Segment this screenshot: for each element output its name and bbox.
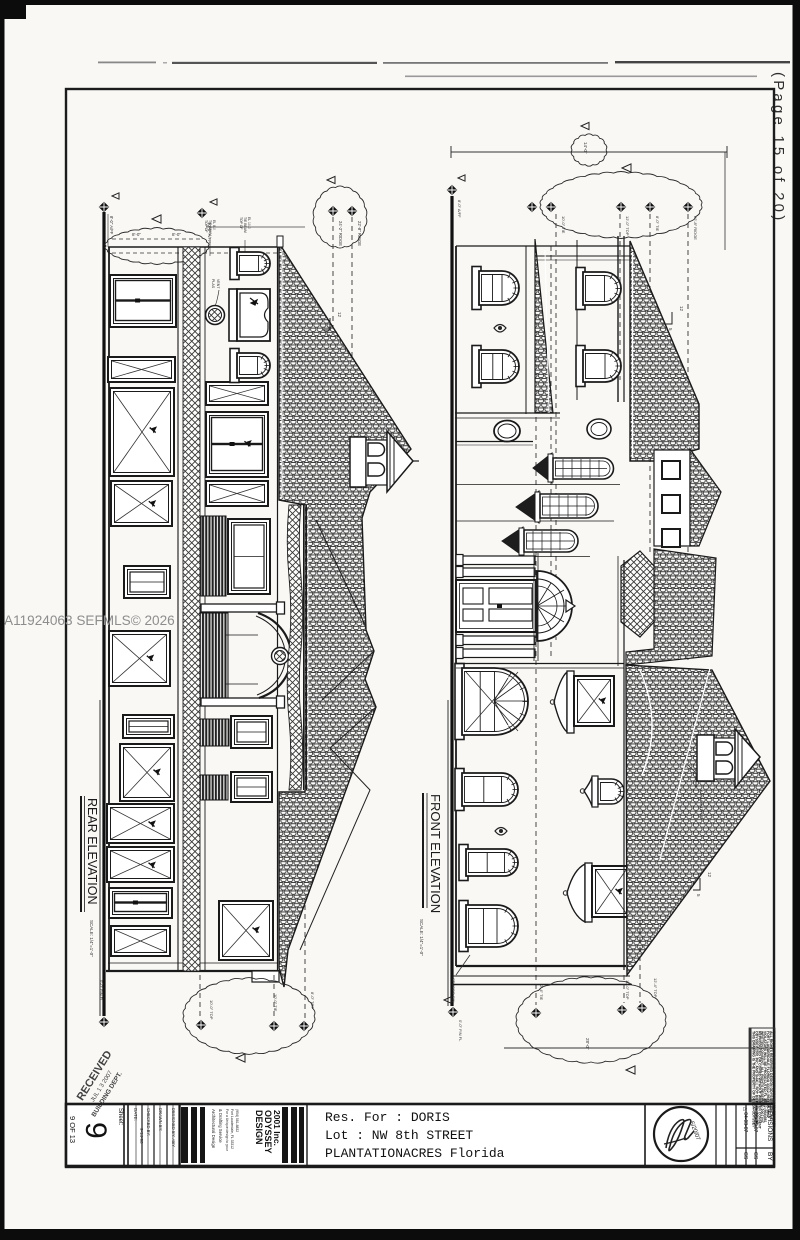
svg-text:0'-0" FIN FL: 0'-0" FIN FL	[99, 980, 104, 1002]
svg-text:CHECKED BY:: CHECKED BY:	[146, 1108, 151, 1136]
svg-text:2001 Inc.: 2001 Inc.	[272, 1110, 282, 1146]
svg-text:STUCCO FIN: STUCCO FIN	[451, 978, 456, 1003]
svg-text:EL 8-0: EL 8-0	[212, 220, 216, 230]
svg-text:12'-0" TOP: 12'-0" TOP	[625, 216, 630, 236]
svg-text:SCALE: 1/4"=1'-0": SCALE: 1/4"=1'-0"	[419, 919, 424, 956]
svg-text:PLANTATIONACRES Florida: PLANTATIONACRES Florida	[325, 1146, 505, 1161]
svg-text:28'-0": 28'-0"	[585, 1038, 590, 1050]
svg-text:TIE BEAM: TIE BEAM	[243, 217, 247, 233]
svg-text:PLAS: PLAS	[211, 279, 215, 289]
svg-text:TOP OF: TOP OF	[204, 220, 208, 233]
svg-text:DESIGN: DESIGN	[254, 1110, 264, 1145]
svg-text:9-14-96: 9-14-96	[139, 1128, 144, 1144]
svg-text:8'-0" A/FF: 8'-0" A/FF	[109, 216, 114, 235]
svg-text:ODYSSEY: ODYSSEY	[263, 1110, 273, 1154]
svg-text:22'-8" RIDGE: 22'-8" RIDGE	[693, 216, 698, 240]
svg-text:& Drafting Service: & Drafting Service	[218, 1109, 223, 1143]
svg-text:2'-4" TIE: 2'-4" TIE	[539, 985, 544, 1001]
svg-text:Lot : NW 8th STREET: Lot : NW 8th STREET	[325, 1128, 473, 1143]
svg-text:DATE:: DATE:	[133, 1108, 138, 1121]
svg-text:10'-0" TIE: 10'-0" TIE	[561, 216, 566, 234]
svg-text:(954) 581-8832: (954) 581-8832	[235, 1109, 239, 1132]
svg-text:VENT: VENT	[216, 279, 220, 289]
svg-text:For a Unique design to your: For a Unique design to your	[225, 1109, 229, 1152]
svg-text:8'-0" A/FF: 8'-0" A/FF	[457, 200, 462, 218]
svg-text:10'-0" TOP: 10'-0" TOP	[209, 1000, 214, 1020]
svg-text:9: 9	[79, 1122, 112, 1139]
svg-text:8'-0": 8'-0"	[132, 232, 141, 237]
svg-text:10'-0" TIE: 10'-0" TIE	[273, 994, 278, 1012]
svg-text:Fort Lauderdale, FL 33312: Fort Lauderdale, FL 33312	[230, 1109, 234, 1149]
svg-text:24'-2" RIDGE: 24'-2" RIDGE	[338, 221, 343, 246]
svg-text:SCALE: 1/4"=1'-0": SCALE: 1/4"=1'-0"	[89, 920, 94, 957]
svg-text:GS: GS	[752, 1152, 758, 1160]
svg-text:ALUM GUTTER: ALUM GUTTER	[699, 790, 704, 819]
svg-text:0'-0" FIN FL: 0'-0" FIN FL	[458, 1020, 463, 1042]
svg-text:10'-0" TOP: 10'-0" TOP	[625, 980, 630, 1000]
svg-text:TIE BEAM: TIE BEAM	[208, 220, 212, 236]
svg-text:BY: BY	[766, 1152, 773, 1161]
svg-text:8'-0" TIE: 8'-0" TIE	[655, 216, 660, 232]
svg-text:TOP OF: TOP OF	[239, 217, 243, 230]
svg-text:△ 04-08-07: △ 04-08-07	[742, 1107, 748, 1132]
svg-text:8'-0": 8'-0"	[172, 232, 181, 237]
svg-text:12'-4" TOP: 12'-4" TOP	[653, 978, 658, 998]
svg-text:12: 12	[679, 306, 684, 312]
svg-text:(Page 15 of 20): (Page 15 of 20)	[770, 72, 787, 223]
svg-text:Res. For : DORIS: Res. For : DORIS	[325, 1110, 450, 1125]
svg-text:DESIGNED BY: ABY: DESIGNED BY: ABY	[171, 1108, 176, 1147]
svg-text:12: 12	[337, 312, 342, 318]
svg-text:Sheet:: Sheet:	[117, 1108, 123, 1126]
svg-text:14'-0": 14'-0"	[583, 142, 588, 154]
svg-text:12: 12	[707, 872, 712, 878]
svg-text:22'-8" RIDGE: 22'-8" RIDGE	[357, 221, 362, 246]
svg-text:8'-0" TOP: 8'-0" TOP	[310, 992, 315, 1009]
svg-text:A11924063 SEFMLS© 2026: A11924063 SEFMLS© 2026	[4, 613, 175, 628]
svg-text:GS: GS	[742, 1152, 748, 1160]
svg-text:9 OF 13: 9 OF 13	[68, 1116, 77, 1143]
svg-text:REAR ELEVATION: REAR ELEVATION	[85, 798, 99, 905]
svg-text:FRONT ELEVATION: FRONT ELEVATION	[428, 794, 443, 913]
svg-text:Architectural Design: Architectural Design	[211, 1109, 216, 1149]
svg-text:DRAWN BY:: DRAWN BY:	[158, 1108, 163, 1131]
